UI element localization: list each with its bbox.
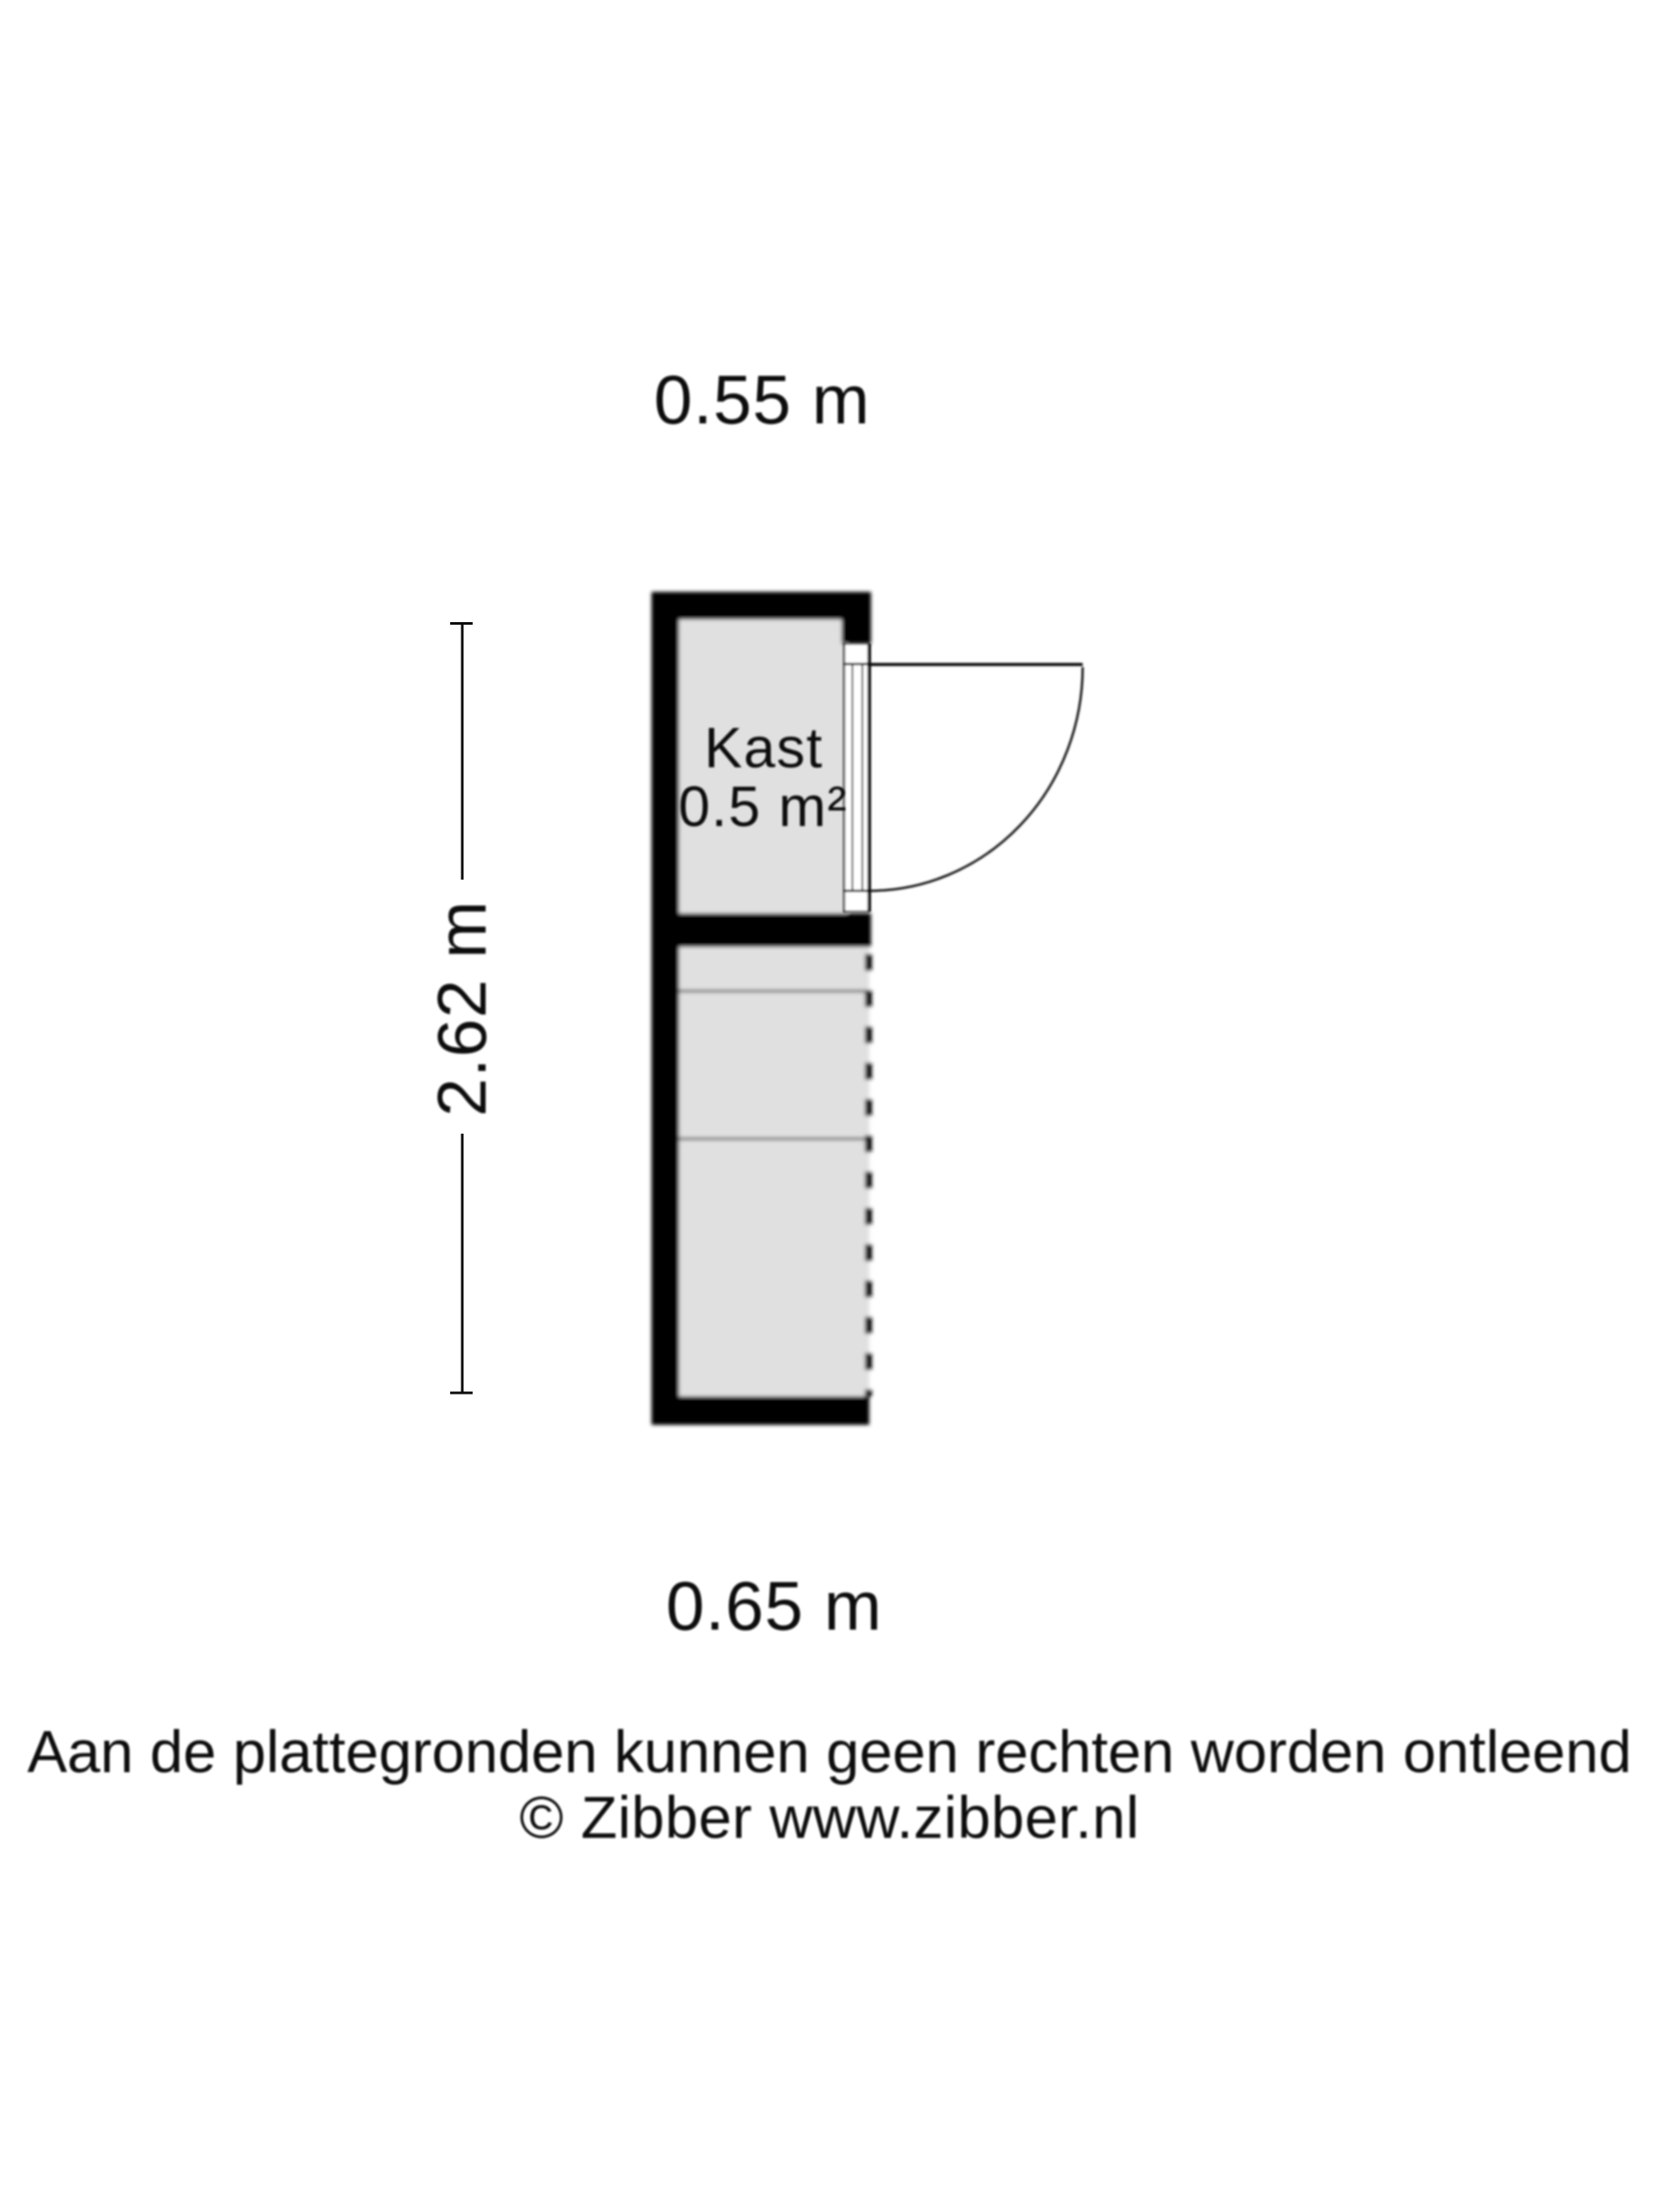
svg-text:0.5 m²: 0.5 m² bbox=[678, 774, 848, 838]
svg-text:2.62 m: 2.62 m bbox=[423, 900, 500, 1117]
svg-text:0.55 m: 0.55 m bbox=[654, 361, 871, 438]
svg-text:0.65 m: 0.65 m bbox=[666, 1567, 883, 1644]
svg-text:Aan de plattegronden kunnen ge: Aan de plattegronden kunnen geen rechten… bbox=[28, 1719, 1632, 1785]
svg-text:Kast: Kast bbox=[704, 715, 823, 779]
svg-text:© Zibber www.zibber.nl: © Zibber www.zibber.nl bbox=[519, 1784, 1140, 1851]
